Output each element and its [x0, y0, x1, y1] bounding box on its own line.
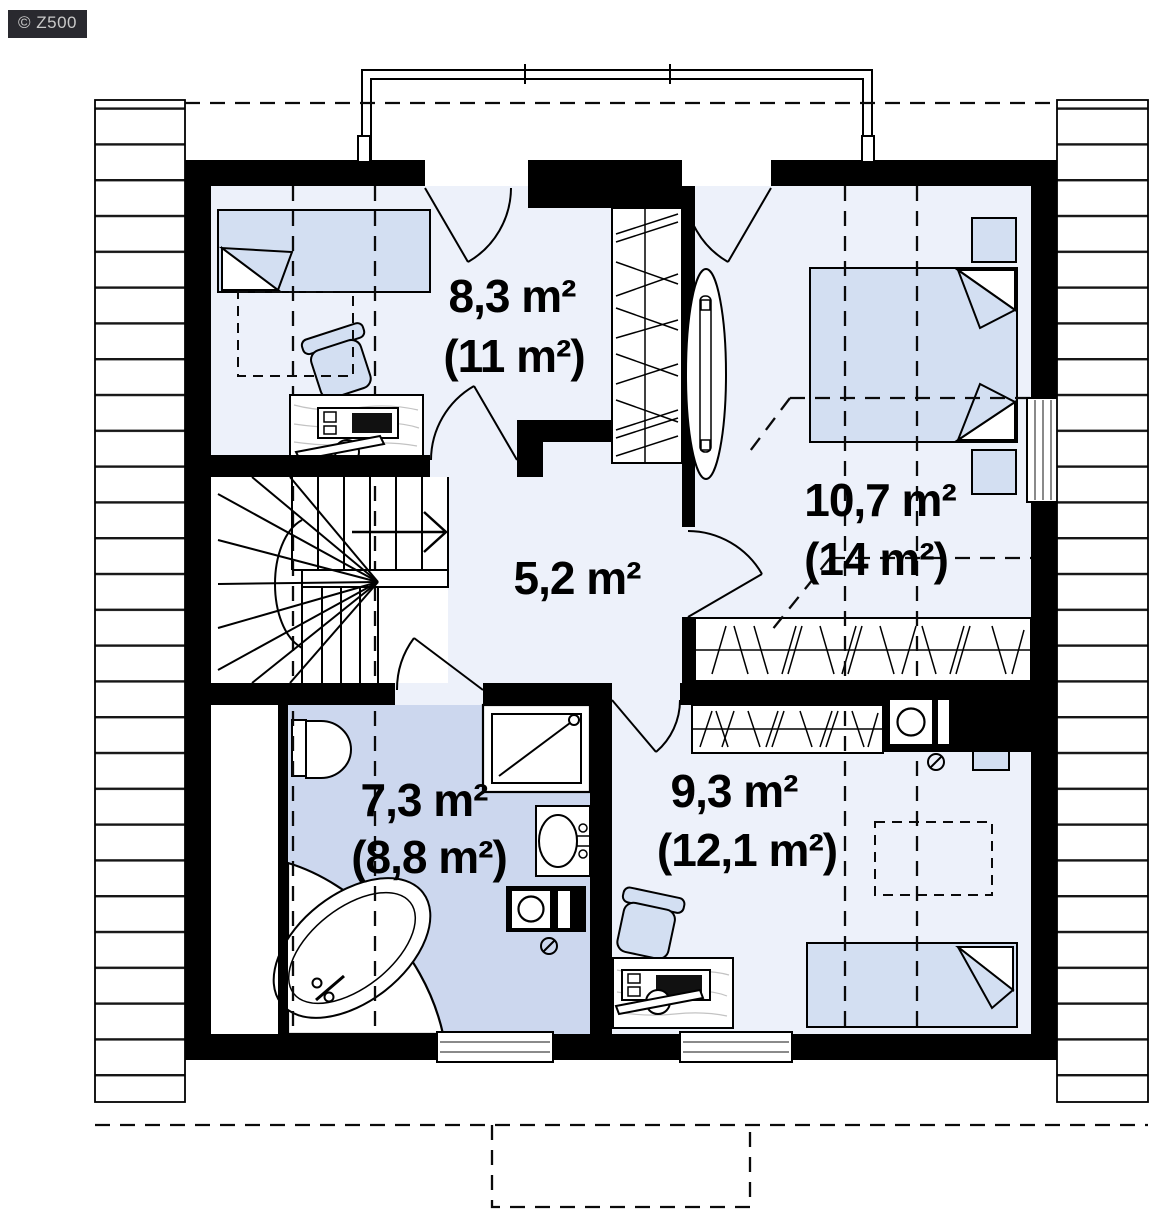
balcony-railing [358, 64, 874, 162]
porch-outline [492, 1125, 750, 1207]
label-bedroom-right-area: 10,7 m² [804, 473, 956, 527]
roof-slope-left [95, 100, 185, 1102]
label-bedroom-lower-total: (12,1 m²) [657, 823, 837, 877]
window-south-right [680, 1032, 792, 1062]
wall-bedroom1-south [211, 455, 430, 477]
roof-slope-right [1057, 100, 1148, 1102]
wardrobe-upper-left [612, 208, 682, 463]
label-bedroom-lower-area: 9,3 m² [671, 764, 798, 818]
wall-bath-bedroom3 [590, 792, 612, 1034]
toilet [292, 720, 351, 778]
label-bedroom-upper-left-total: (11 m²) [443, 329, 584, 383]
desk-lower-right [613, 958, 733, 1028]
label-bathroom-total: (8,8 m²) [351, 830, 507, 884]
watermark-z500: © Z500 [8, 10, 87, 38]
wardrobe-bedroom-lower [692, 705, 883, 753]
window-south-left [437, 1032, 553, 1062]
window-east [1027, 398, 1059, 502]
bed-upper-left [218, 210, 430, 292]
wall-void-east [278, 683, 288, 1034]
label-bathroom-area: 7,3 m² [361, 773, 488, 827]
washbasin [536, 806, 590, 876]
nightstand-bottom [972, 450, 1016, 494]
label-bedroom-right-total: (14 m²) [804, 532, 948, 586]
wall-hall-bath [211, 683, 395, 705]
tall-mirror [686, 269, 726, 479]
shower-cabin [483, 705, 590, 792]
desk-upper-left [290, 395, 423, 464]
wardrobe-bedroom-right [695, 618, 1031, 682]
label-hall-area: 5,2 m² [514, 551, 641, 605]
floor-plan [0, 0, 1152, 1212]
nightstand-top [972, 218, 1016, 262]
bed-lower-right [807, 943, 1017, 1027]
label-bedroom-upper-left-area: 8,3 m² [449, 269, 576, 323]
